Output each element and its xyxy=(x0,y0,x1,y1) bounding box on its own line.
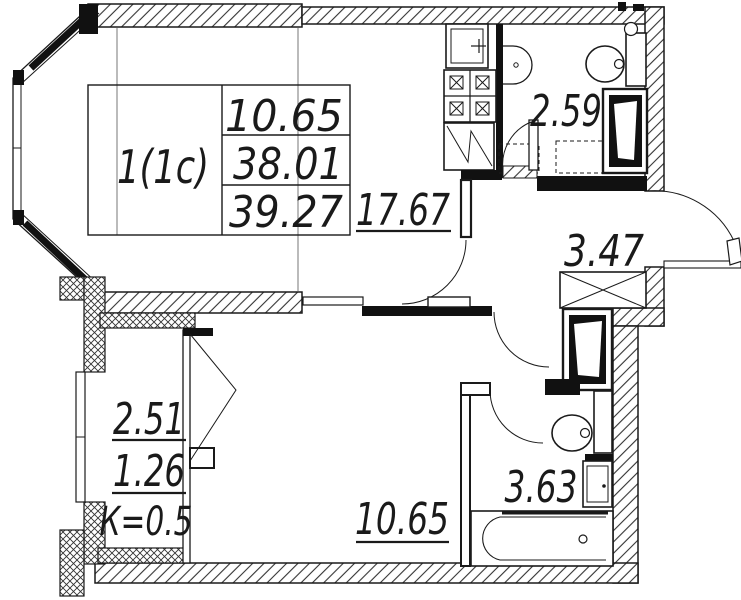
stamp-total-area: 39.27 xyxy=(229,187,343,238)
stamp-room-area: 10.65 xyxy=(225,91,343,142)
bay-corner-upper-left xyxy=(13,70,24,85)
bay-wall-band-lower xyxy=(25,223,89,283)
hall xyxy=(545,191,741,395)
mid-wall xyxy=(100,292,302,313)
bathtub-icon xyxy=(471,511,613,566)
bathroom-area-label: 3.63 xyxy=(505,462,578,513)
fridge-icon xyxy=(444,123,494,170)
stamp-living-area: 38.01 xyxy=(233,139,343,190)
bedroom-door-leaf xyxy=(428,297,470,307)
wall-marker xyxy=(633,4,644,11)
vent-circle-icon xyxy=(625,23,638,36)
area-stamp: 1(1с) 10.65 38.01 39.27 xyxy=(88,85,350,238)
balcony-full-area-label: 2.51 xyxy=(113,394,185,445)
bathroom-wall-stub xyxy=(461,383,490,395)
wc-door-arc xyxy=(503,122,531,170)
kitchen-living-area-label: 17.67 xyxy=(356,185,450,236)
wall-marker xyxy=(618,2,626,11)
top-wall-left xyxy=(88,4,302,27)
balcony-outer-block-bottom xyxy=(60,530,84,596)
top-wall-right xyxy=(302,7,664,24)
vestibule-wall-corner xyxy=(545,379,580,395)
toilet-icon xyxy=(586,33,646,86)
vent-shaft-icon xyxy=(603,89,647,173)
wc-bottom-wall xyxy=(537,176,647,191)
bedroom-partition-wall xyxy=(362,306,492,316)
toilet-icon xyxy=(552,391,612,453)
bathroom-door-arc xyxy=(490,390,543,443)
sink-icon xyxy=(583,461,612,507)
kitchen-door-arc xyxy=(402,240,466,304)
bay-wall-band-upper xyxy=(31,17,86,68)
stove-icon xyxy=(444,70,496,122)
right-wall-lower xyxy=(613,326,638,583)
balcony-door-block xyxy=(190,448,214,468)
stamp-apartment-type: 1(1с) xyxy=(117,140,209,194)
washbasin-icon xyxy=(503,46,532,84)
bedroom-wall xyxy=(303,297,549,367)
entrance-door-arc xyxy=(648,191,734,241)
kitchen xyxy=(402,24,503,304)
balcony-door-swing xyxy=(190,334,236,461)
vestibule-door-arc xyxy=(494,312,549,367)
balcony-counted-area-label: 1.26 xyxy=(113,446,185,497)
bathroom-left-wall xyxy=(461,383,470,566)
hall-area-label: 3.47 xyxy=(564,226,644,277)
riser-shaft-icon xyxy=(563,309,612,390)
balcony-glazing-jog xyxy=(183,328,213,336)
balcony-parapet-top xyxy=(100,313,195,328)
appliance-dashed-outline xyxy=(556,141,603,173)
kitchen-partition xyxy=(461,180,471,237)
wc-area-label: 2.59 xyxy=(530,86,602,137)
wardrobe-icon xyxy=(560,272,646,308)
bathroom-ledge xyxy=(585,454,613,461)
balcony-coefficient-label: К=0.5 xyxy=(100,499,193,545)
balcony-outer-block-top xyxy=(60,277,84,300)
bedroom-area-label: 10.65 xyxy=(355,494,449,545)
floor-plan-drawing: 1(1с) 10.65 38.01 39.27 xyxy=(0,0,741,600)
bay-corner-top xyxy=(79,4,98,34)
kitchen-wall-stub xyxy=(461,170,502,180)
balcony-parapet-bottom xyxy=(98,548,184,563)
entrance-door-leaf xyxy=(727,238,741,265)
bay-window xyxy=(13,4,99,297)
bay-corner-lower-left xyxy=(13,210,24,225)
right-wall-step xyxy=(613,308,664,326)
floor-plan: 1(1с) 10.65 38.01 39.27 xyxy=(0,0,741,600)
kitchen-sink-icon xyxy=(446,24,488,68)
bedroom-door-sill xyxy=(303,297,363,305)
